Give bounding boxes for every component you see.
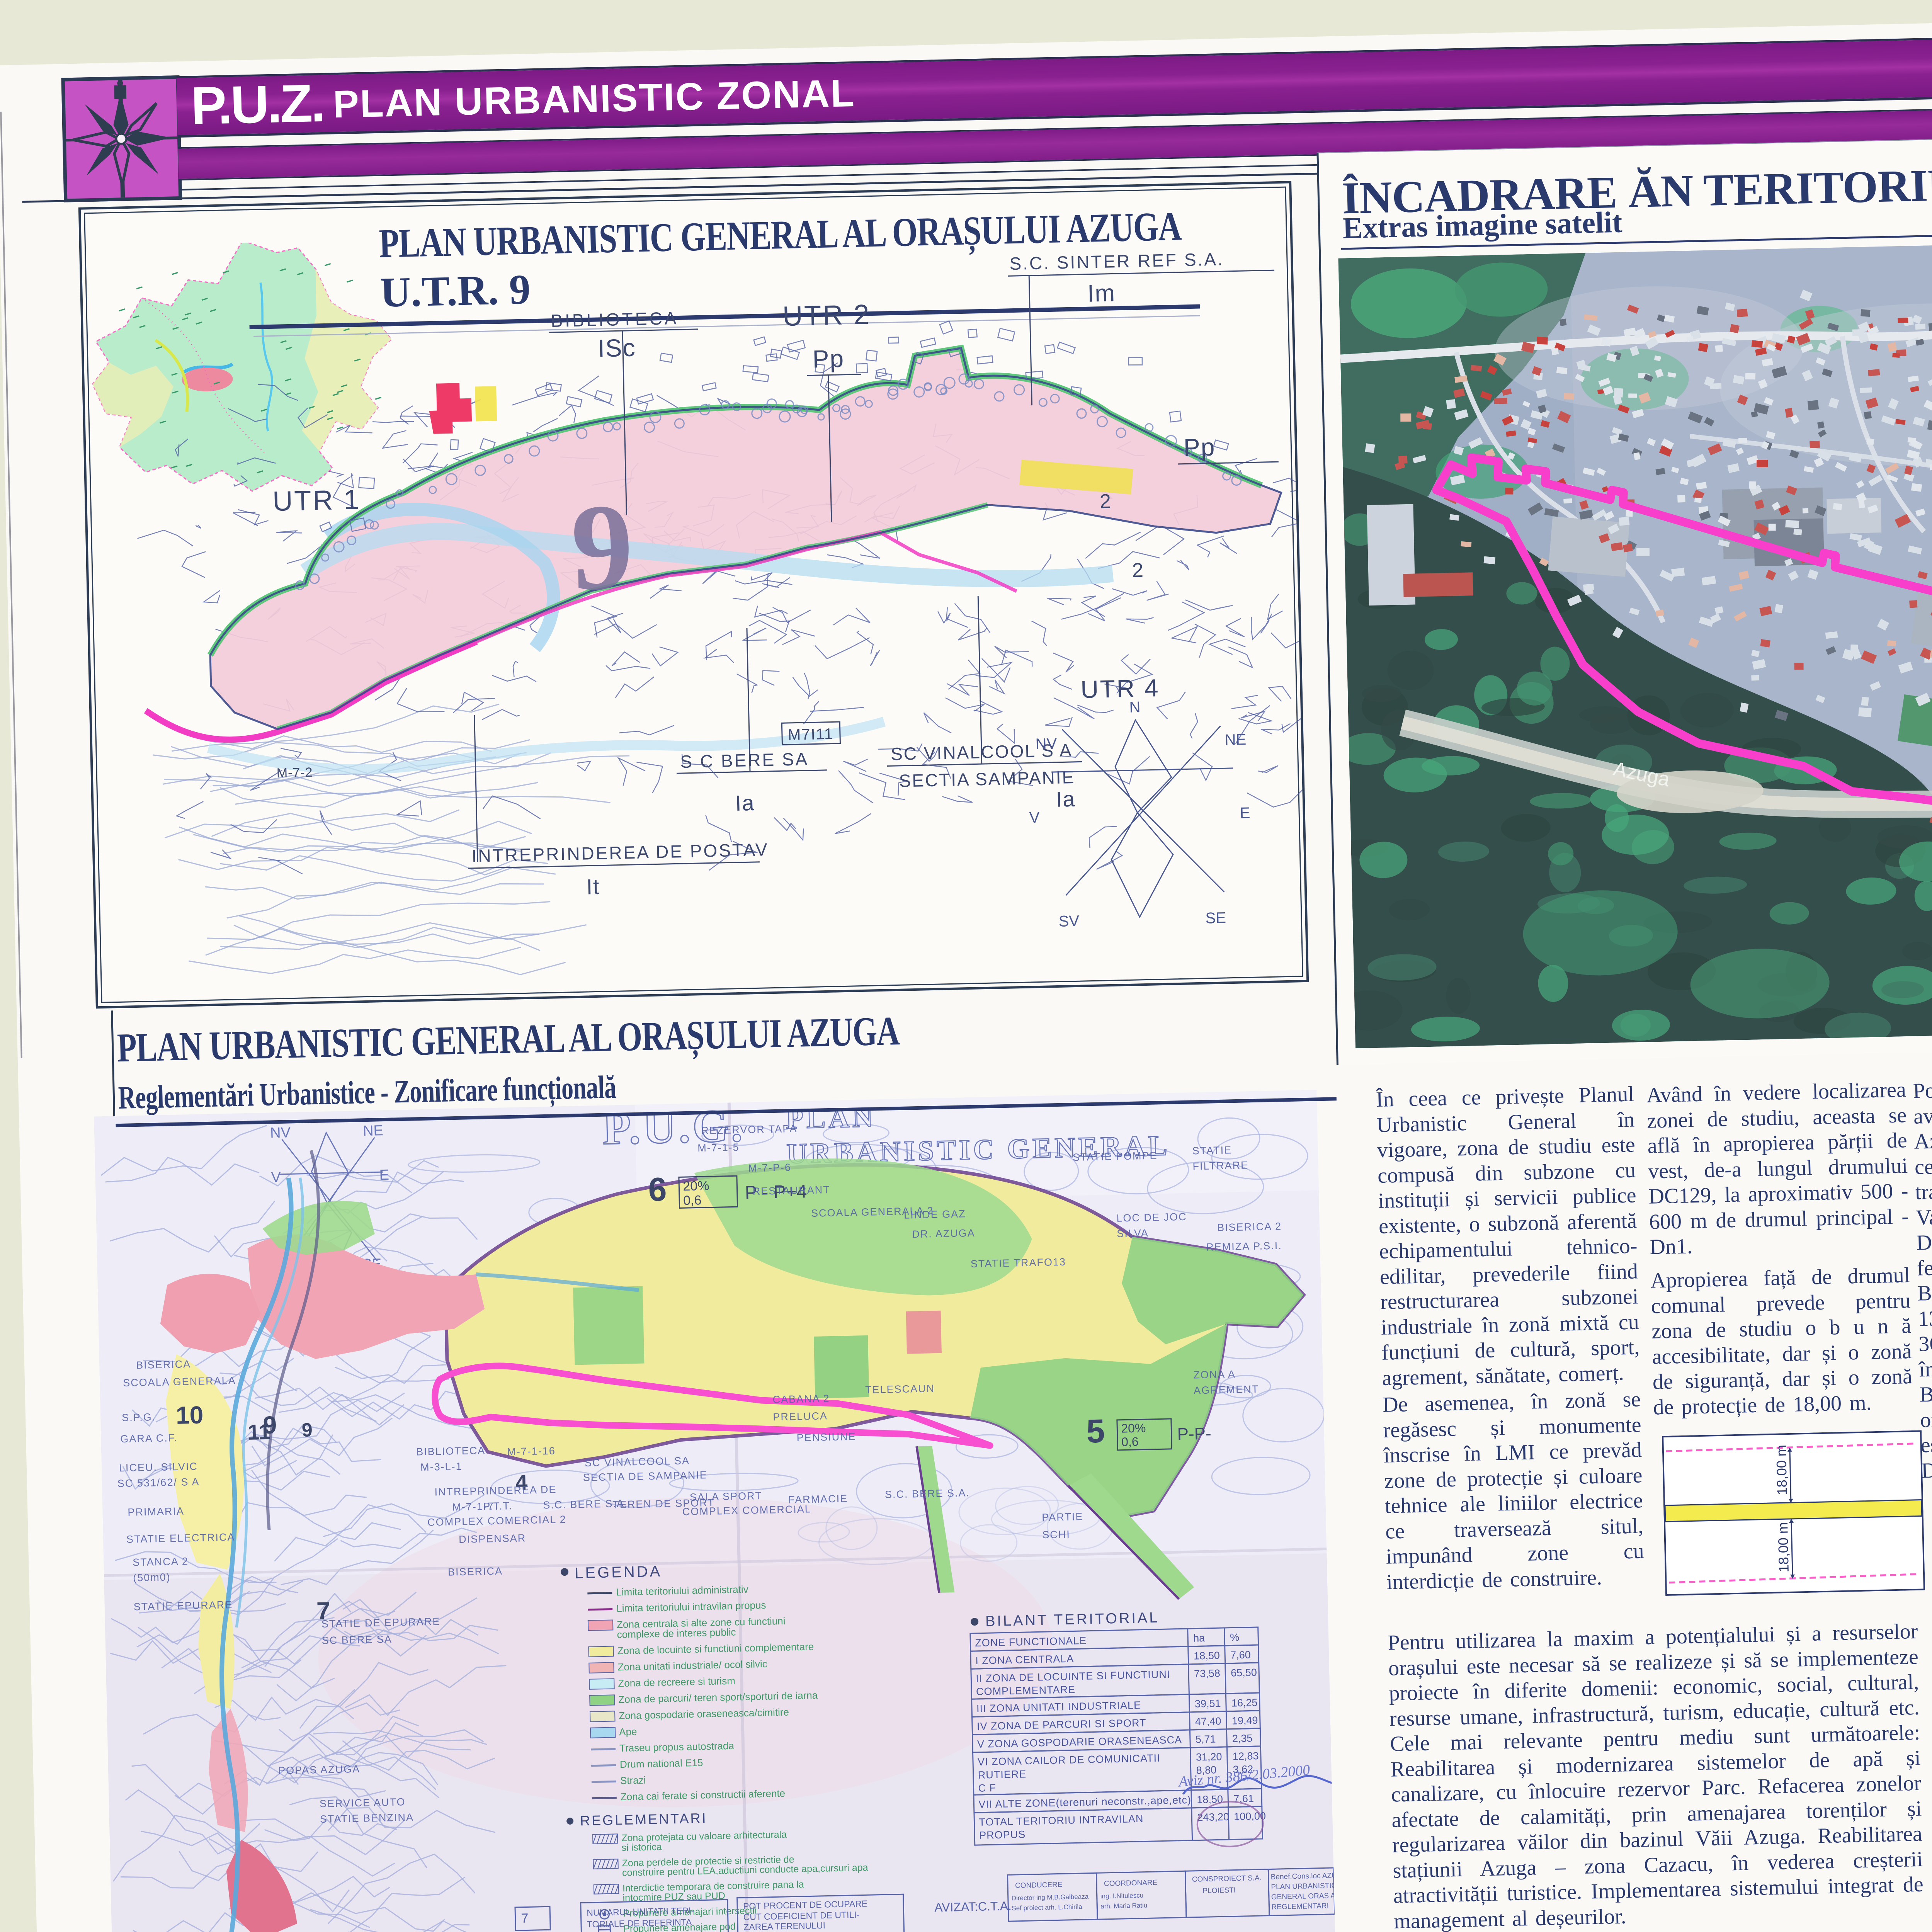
svg-text:2: 2 xyxy=(1099,490,1112,513)
svg-text:STATIE ELECTRICA: STATIE ELECTRICA xyxy=(126,1531,235,1545)
svg-text:Ape: Ape xyxy=(619,1726,637,1738)
svg-text:0,6: 0,6 xyxy=(683,1193,702,1208)
svg-text:NV: NV xyxy=(1035,735,1057,753)
svg-text:SERVICE AUTO: SERVICE AUTO xyxy=(320,1796,406,1810)
svg-text:18,50: 18,50 xyxy=(1194,1650,1220,1662)
svg-text:C F: C F xyxy=(978,1782,996,1794)
svg-text:BISERICA 2: BISERICA 2 xyxy=(1217,1220,1282,1233)
svg-text:Sef proiect arh. L.Chirila: Sef proiect arh. L.Chirila xyxy=(1012,1903,1082,1912)
svg-text:AGREMENT: AGREMENT xyxy=(1194,1383,1259,1396)
svg-text:BISERICA: BISERICA xyxy=(448,1565,503,1578)
svg-text:S C BERE SA: S C BERE SA xyxy=(680,749,809,772)
svg-text:STATIE TRAFO13: STATIE TRAFO13 xyxy=(971,1256,1066,1270)
svg-text:Pp: Pp xyxy=(812,345,845,373)
svg-text:9: 9 xyxy=(570,478,634,616)
svg-text:FILTRARE: FILTRARE xyxy=(1192,1159,1248,1172)
svg-text:SILVA: SILVA xyxy=(1117,1227,1149,1240)
svg-text:12,83: 12,83 xyxy=(1233,1750,1259,1762)
svg-text:19,49: 19,49 xyxy=(1232,1714,1258,1726)
svg-text:PROPUS: PROPUS xyxy=(979,1828,1026,1841)
svg-text:M-7-1-16: M-7-1-16 xyxy=(507,1445,556,1458)
svg-text:COORDONARE: COORDONARE xyxy=(1104,1879,1158,1888)
svg-text:COMPLEMENTARE: COMPLEMENTARE xyxy=(976,1684,1076,1697)
svg-text:PENSIUNE: PENSIUNE xyxy=(796,1431,856,1444)
svg-text:UTR 1: UTR 1 xyxy=(272,484,361,517)
svg-text:39,51: 39,51 xyxy=(1195,1697,1221,1709)
svg-text:CABANA 2: CABANA 2 xyxy=(772,1393,830,1405)
svg-text:ISc: ISc xyxy=(597,333,636,362)
svg-text:P-P-: P-P- xyxy=(1177,1424,1211,1444)
svg-text:S.P.G.: S.P.G. xyxy=(122,1411,156,1423)
svg-text:INTREPRINDEREA DE POSTAV: INTREPRINDEREA DE POSTAV xyxy=(471,839,769,866)
svg-text:6: 6 xyxy=(648,1171,667,1208)
svg-text:M-7-2: M-7-2 xyxy=(276,765,313,781)
svg-text:STATIE BENZINA: STATIE BENZINA xyxy=(320,1811,414,1825)
svg-text:E: E xyxy=(379,1167,389,1184)
svg-text:PLAN URBANISTIC: PLAN URBANISTIC xyxy=(1271,1882,1337,1891)
svg-text:STATIE EPURARE: STATIE EPURARE xyxy=(133,1599,233,1613)
svg-text:73,58: 73,58 xyxy=(1194,1667,1220,1679)
svg-text:SE: SE xyxy=(1205,909,1226,927)
svg-text:ing. I.Nitulescu: ing. I.Nitulescu xyxy=(1100,1892,1144,1900)
svg-text:10: 10 xyxy=(175,1401,204,1429)
svg-text:ZONA A: ZONA A xyxy=(1193,1368,1236,1381)
svg-text:STATIE: STATIE xyxy=(1192,1144,1232,1156)
svg-text:SC VINALCOOL SA: SC VINALCOOL SA xyxy=(585,1455,690,1469)
svg-text:I ZONA CENTRALA: I ZONA CENTRALA xyxy=(975,1653,1074,1667)
svg-text:DR. AZUGA: DR. AZUGA xyxy=(912,1227,975,1240)
svg-text:LEGENDA: LEGENDA xyxy=(575,1563,662,1582)
svg-text:9: 9 xyxy=(301,1419,313,1441)
svg-text:(50m0): (50m0) xyxy=(133,1571,171,1583)
svg-text:2,35: 2,35 xyxy=(1232,1732,1253,1744)
svg-text:PRIMARIA: PRIMARIA xyxy=(128,1505,184,1518)
svg-text:REGLEMENTARI: REGLEMENTARI xyxy=(580,1810,707,1828)
svg-text:V: V xyxy=(271,1169,281,1186)
svg-text:NE: NE xyxy=(1225,731,1247,748)
svg-text:SALA SPORT: SALA SPORT xyxy=(690,1490,762,1503)
svg-text:V: V xyxy=(1029,809,1040,827)
svg-text:Ia: Ia xyxy=(735,791,755,815)
svg-text:7,60: 7,60 xyxy=(1230,1649,1251,1661)
svg-text:CONSPROIECT S.A.: CONSPROIECT S.A. xyxy=(1192,1874,1262,1884)
svg-text:BISERICA: BISERICA xyxy=(136,1358,191,1371)
svg-text:DISPENSAR: DISPENSAR xyxy=(459,1532,526,1545)
svg-text:E: E xyxy=(1240,804,1250,822)
svg-text:NV: NV xyxy=(270,1124,291,1141)
svg-text:RESTAURANT: RESTAURANT xyxy=(752,1184,830,1197)
svg-text:5,71: 5,71 xyxy=(1196,1733,1216,1745)
svg-text:11: 11 xyxy=(247,1420,271,1444)
svg-text:CONDUCERE: CONDUCERE xyxy=(1015,1881,1063,1890)
svg-text:REZERVOR TAPA: REZERVOR TAPA xyxy=(701,1123,798,1136)
svg-text:AVIZAT:C.T.A.: AVIZAT:C.T.A. xyxy=(934,1899,1012,1914)
svg-text:LOC DE JOC: LOC DE JOC xyxy=(1116,1211,1187,1224)
svg-text:S.C. BERE S.A.: S.C. BERE S.A. xyxy=(885,1487,970,1500)
svg-text:TELESCAUN: TELESCAUN xyxy=(865,1383,935,1396)
svg-text:FARMACIE: FARMACIE xyxy=(788,1493,848,1505)
svg-text:It: It xyxy=(586,874,600,899)
svg-text:arh. Maria Ratiu: arh. Maria Ratiu xyxy=(1100,1901,1147,1910)
svg-text:LINDE GAZ: LINDE GAZ xyxy=(904,1208,966,1221)
svg-text:PLOIESTI: PLOIESTI xyxy=(1202,1886,1236,1895)
svg-text:si istorica: si istorica xyxy=(621,1842,662,1853)
svg-text:0,6: 0,6 xyxy=(1121,1435,1139,1449)
svg-text:REMIZA P.S.I.: REMIZA P.S.I. xyxy=(1206,1240,1282,1253)
svg-text:ZONE FUNCTIONALE: ZONE FUNCTIONALE xyxy=(975,1635,1087,1649)
svg-text:Strazi: Strazi xyxy=(620,1774,646,1786)
svg-text:20%: 20% xyxy=(683,1179,709,1194)
svg-text:S.C. SINTER REF S.A.: S.C. SINTER REF S.A. xyxy=(1009,249,1224,274)
svg-text:M7I11: M7I11 xyxy=(788,725,834,743)
svg-text:Benef.Cons.loc AZUGA: Benef.Cons.loc AZUGA xyxy=(1271,1871,1337,1881)
svg-text:5: 5 xyxy=(1086,1413,1105,1450)
svg-text:SV: SV xyxy=(1058,913,1080,930)
svg-text:SCHI: SCHI xyxy=(1042,1529,1070,1541)
svg-text:M-3-L-1: M-3-L-1 xyxy=(420,1461,463,1473)
svg-text:RUTIERE: RUTIERE xyxy=(978,1768,1026,1781)
svg-text:SCOALA GENERALA: SCOALA GENERALA xyxy=(123,1375,236,1389)
svg-text:Pp: Pp xyxy=(1183,433,1216,462)
svg-text:STANCA 2: STANCA 2 xyxy=(133,1555,189,1568)
svg-text:STATIE POMPE: STATIE POMPE xyxy=(1073,1150,1158,1163)
svg-text:BIBLIOTECA: BIBLIOTECA xyxy=(416,1445,486,1458)
svg-text:NE: NE xyxy=(363,1122,384,1139)
svg-text:65,50: 65,50 xyxy=(1231,1667,1257,1679)
svg-text:M-7-1-5: M-7-1-5 xyxy=(697,1141,740,1154)
svg-text:Drum national E15: Drum national E15 xyxy=(620,1757,703,1770)
svg-text:N: N xyxy=(1129,699,1141,716)
svg-text:GARA C.F.: GARA C.F. xyxy=(120,1432,178,1445)
svg-text:UTR 4: UTR 4 xyxy=(1080,674,1160,703)
svg-text:Ia: Ia xyxy=(1056,787,1076,811)
svg-text:16,25: 16,25 xyxy=(1231,1697,1258,1709)
svg-text:GENERAL ORAS AZUGA: GENERAL ORAS AZUGA xyxy=(1271,1891,1337,1901)
svg-text:SC 531/62/ S A: SC 531/62/ S A xyxy=(117,1476,200,1490)
svg-text:REGLEMENTARI: REGLEMENTARI xyxy=(1271,1902,1329,1911)
svg-text:Im: Im xyxy=(1087,280,1116,307)
svg-text:2: 2 xyxy=(1132,559,1144,582)
svg-text:SECTIA SAMPANIE: SECTIA SAMPANIE xyxy=(899,767,1075,791)
svg-text:SC BERE SA: SC BERE SA xyxy=(321,1633,392,1646)
svg-text:M-7-1-7: M-7-1-7 xyxy=(452,1500,494,1513)
svg-text:POPAS AZUGA: POPAS AZUGA xyxy=(278,1763,361,1777)
svg-text:BIBLIOTECA: BIBLIOTECA xyxy=(551,308,679,331)
svg-text:ha: ha xyxy=(1193,1632,1206,1644)
svg-text:20%: 20% xyxy=(1121,1421,1146,1435)
svg-text:18,00 m: 18,00 m xyxy=(1775,1522,1792,1573)
svg-text:31,20: 31,20 xyxy=(1196,1751,1222,1763)
svg-text:18,00 m: 18,00 m xyxy=(1773,1445,1790,1495)
svg-text:PRELUCA: PRELUCA xyxy=(773,1410,828,1423)
svg-text:LICEU. SILVIC: LICEU. SILVIC xyxy=(119,1461,198,1474)
svg-text:UTR 2: UTR 2 xyxy=(782,299,871,332)
svg-text:7: 7 xyxy=(521,1911,529,1925)
svg-text:47,40: 47,40 xyxy=(1195,1715,1221,1727)
svg-text:PARTIE: PARTIE xyxy=(1042,1511,1083,1523)
svg-text:ZAREA TERENULUI: ZAREA TERENULUI xyxy=(743,1920,825,1932)
svg-text:M-7-P-6: M-7-P-6 xyxy=(748,1162,791,1174)
svg-text:PLAN: PLAN xyxy=(786,1101,876,1135)
svg-text:%: % xyxy=(1230,1631,1240,1643)
